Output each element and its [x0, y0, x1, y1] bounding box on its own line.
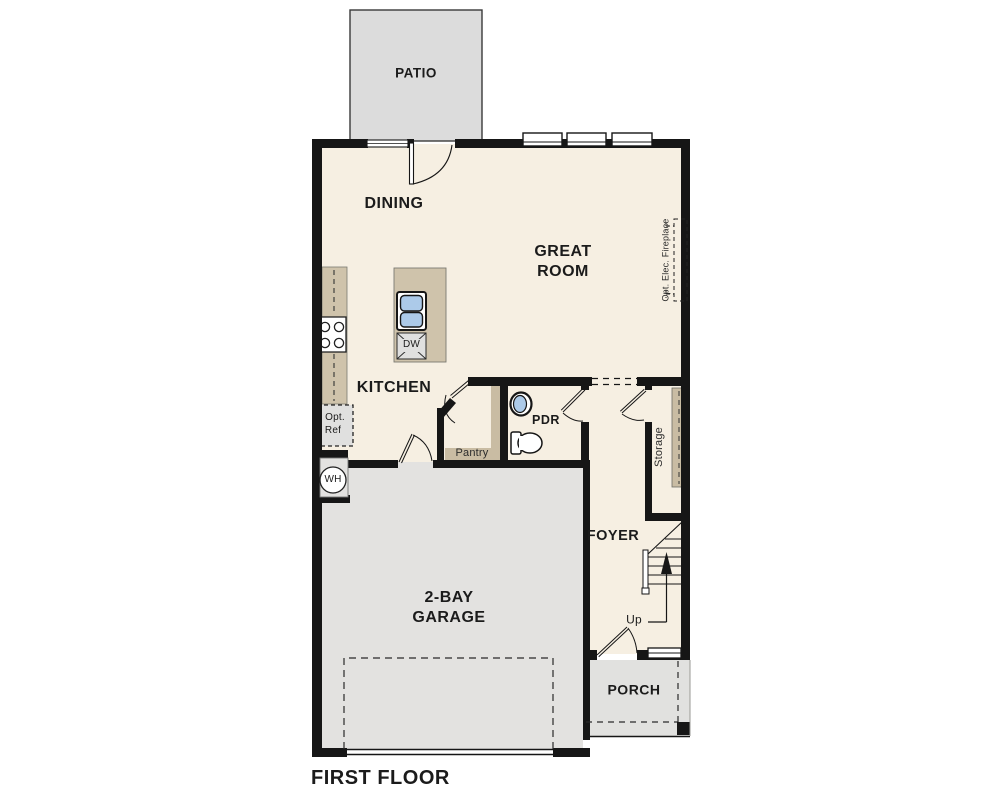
kitchen-label: KITCHEN: [357, 378, 432, 398]
porch-label: PORCH: [607, 681, 660, 699]
opt-ref-label-line1: Opt.: [325, 412, 345, 425]
opt-ref-label-line2: Ref: [325, 425, 341, 438]
dining-label: DINING: [365, 194, 424, 214]
great-room-window-1: [523, 133, 562, 146]
patio-door-sidelite: [367, 140, 408, 147]
foyer-cased-opening: [592, 377, 637, 386]
porch-post: [677, 722, 690, 735]
pdr-label: PDR: [532, 413, 560, 429]
kitchen-sink: [397, 292, 426, 330]
great-room-label: GREAT ROOM: [524, 242, 602, 282]
floor-plan-drawing: [0, 0, 1000, 800]
floor-plan: PATIO DINING GREAT ROOM KITCHEN PDR Pant…: [0, 0, 1000, 800]
water-heater-label: WH: [324, 474, 341, 487]
plan-title: FIRST FLOOR: [311, 766, 450, 791]
up-label: Up: [626, 613, 642, 628]
garage-door: [347, 750, 553, 755]
patio-label: PATIO: [395, 66, 437, 83]
foyer-label: FOYER: [587, 527, 639, 545]
dishwasher-label: DW: [403, 339, 420, 352]
foyer-window: [648, 648, 681, 658]
pantry-label: Pantry: [456, 447, 489, 461]
garage-label: 2-BAY GARAGE: [409, 588, 489, 628]
toilet: [511, 432, 542, 454]
opt-fireplace-label: Opt. Elec. Fireplace: [660, 218, 671, 301]
pdr-sink: [511, 393, 532, 416]
storage-label: Storage: [653, 427, 667, 467]
great-room-window-3: [612, 133, 652, 146]
stairs-handrail: [643, 550, 648, 592]
great-room-window-2: [567, 133, 606, 146]
